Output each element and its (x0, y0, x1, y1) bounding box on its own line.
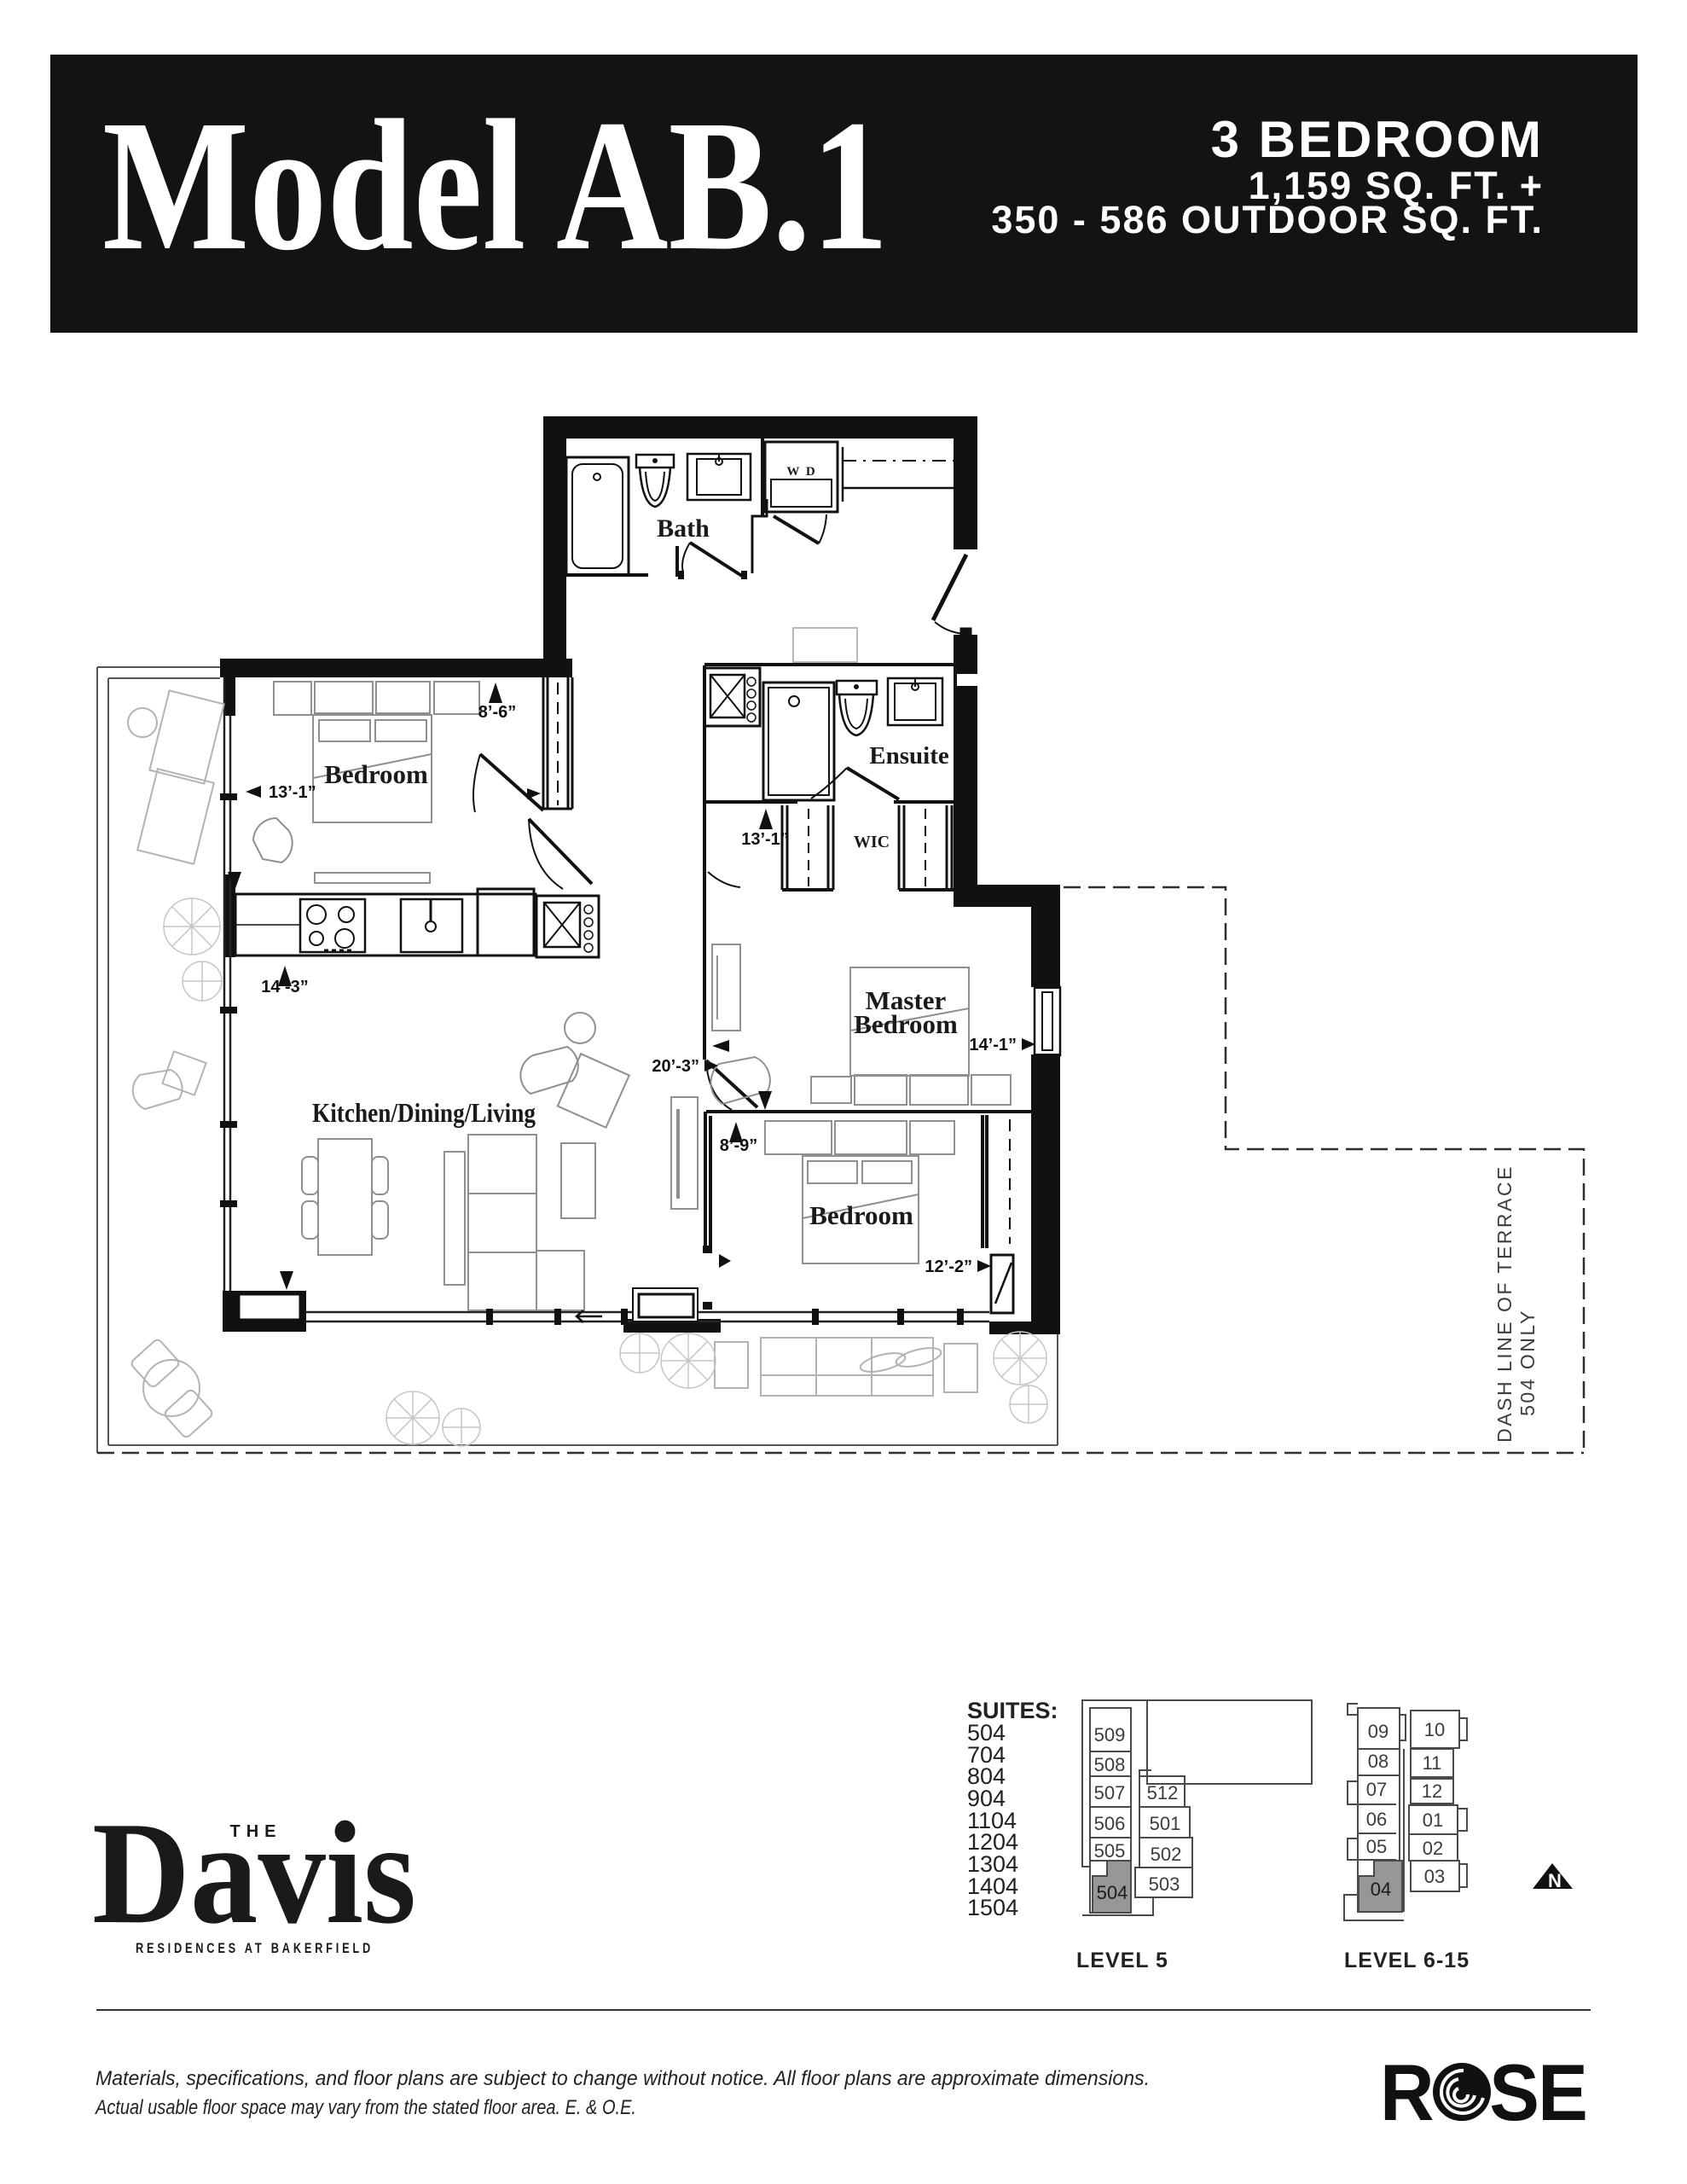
svg-text:507: 507 (1094, 1782, 1126, 1804)
svg-text:503: 503 (1149, 1873, 1180, 1895)
svg-text:W D: W D (786, 465, 816, 479)
svg-text:509: 509 (1094, 1724, 1126, 1745)
svg-text:Bedroom: Bedroom (809, 1200, 913, 1230)
svg-text:1504: 1504 (967, 1895, 1018, 1920)
svg-text:512: 512 (1147, 1782, 1179, 1804)
svg-text:12: 12 (1422, 1780, 1442, 1802)
svg-text:RESIDENCES AT BAKERFIELD: RESIDENCES AT BAKERFIELD (136, 1940, 374, 1956)
svg-text:WIC: WIC (854, 833, 890, 851)
svg-text:08: 08 (1368, 1751, 1388, 1772)
svg-text:350 - 586 OUTDOOR SQ. FT.: 350 - 586 OUTDOOR SQ. FT. (991, 198, 1544, 241)
svg-text:01: 01 (1423, 1809, 1443, 1831)
svg-text:10: 10 (1424, 1719, 1445, 1740)
svg-text:505: 505 (1094, 1840, 1126, 1862)
svg-text:Davis: Davis (92, 1792, 416, 1955)
svg-text:501: 501 (1150, 1813, 1181, 1834)
svg-text:Kitchen/Dining/Living: Kitchen/Dining/Living (312, 1097, 536, 1128)
svg-text:3 BEDROOM: 3 BEDROOM (1211, 111, 1544, 168)
svg-text:Bath: Bath (657, 514, 710, 543)
svg-text:LEVEL 6-15: LEVEL 6-15 (1344, 1949, 1470, 1972)
svg-text:20’-3”: 20’-3” (652, 1057, 699, 1076)
svg-text:Ensuite: Ensuite (869, 742, 949, 770)
svg-text:Bedroom: Bedroom (324, 759, 428, 789)
svg-text:13’-1”: 13’-1” (269, 783, 316, 802)
svg-text:14’-1”: 14’-1” (969, 1036, 1017, 1054)
svg-text:Model AB.1: Model AB.1 (102, 81, 889, 289)
svg-text:Bedroom: Bedroom (854, 1009, 958, 1039)
svg-text:504 ONLY: 504 ONLY (1516, 1309, 1539, 1416)
svg-text:12’-2”: 12’-2” (925, 1258, 972, 1276)
svg-text:8’-6”: 8’-6” (478, 703, 516, 722)
svg-text:502: 502 (1151, 1844, 1182, 1865)
svg-text:LEVEL 5: LEVEL 5 (1076, 1949, 1168, 1972)
svg-text:05: 05 (1366, 1836, 1387, 1857)
svg-text:09: 09 (1368, 1721, 1388, 1742)
svg-text:06: 06 (1366, 1809, 1387, 1830)
svg-text:506: 506 (1094, 1813, 1126, 1834)
svg-text:N: N (1548, 1870, 1562, 1891)
svg-text:11: 11 (1423, 1752, 1442, 1774)
svg-text:Materials, specifications, and: Materials, specifications, and floor pla… (96, 2067, 1150, 2090)
svg-text:03: 03 (1424, 1866, 1445, 1887)
svg-text:04: 04 (1371, 1879, 1391, 1900)
svg-text:02: 02 (1423, 1838, 1443, 1859)
svg-text:13’-1”: 13’-1” (741, 830, 789, 849)
svg-text:DASH LINE OF TERRACE: DASH LINE OF TERRACE (1493, 1165, 1516, 1443)
svg-text:Actual usable floor space may: Actual usable floor space may vary from … (94, 2096, 636, 2119)
svg-text:504: 504 (1097, 1882, 1128, 1903)
svg-text:07: 07 (1366, 1779, 1387, 1800)
svg-text:508: 508 (1094, 1754, 1126, 1775)
